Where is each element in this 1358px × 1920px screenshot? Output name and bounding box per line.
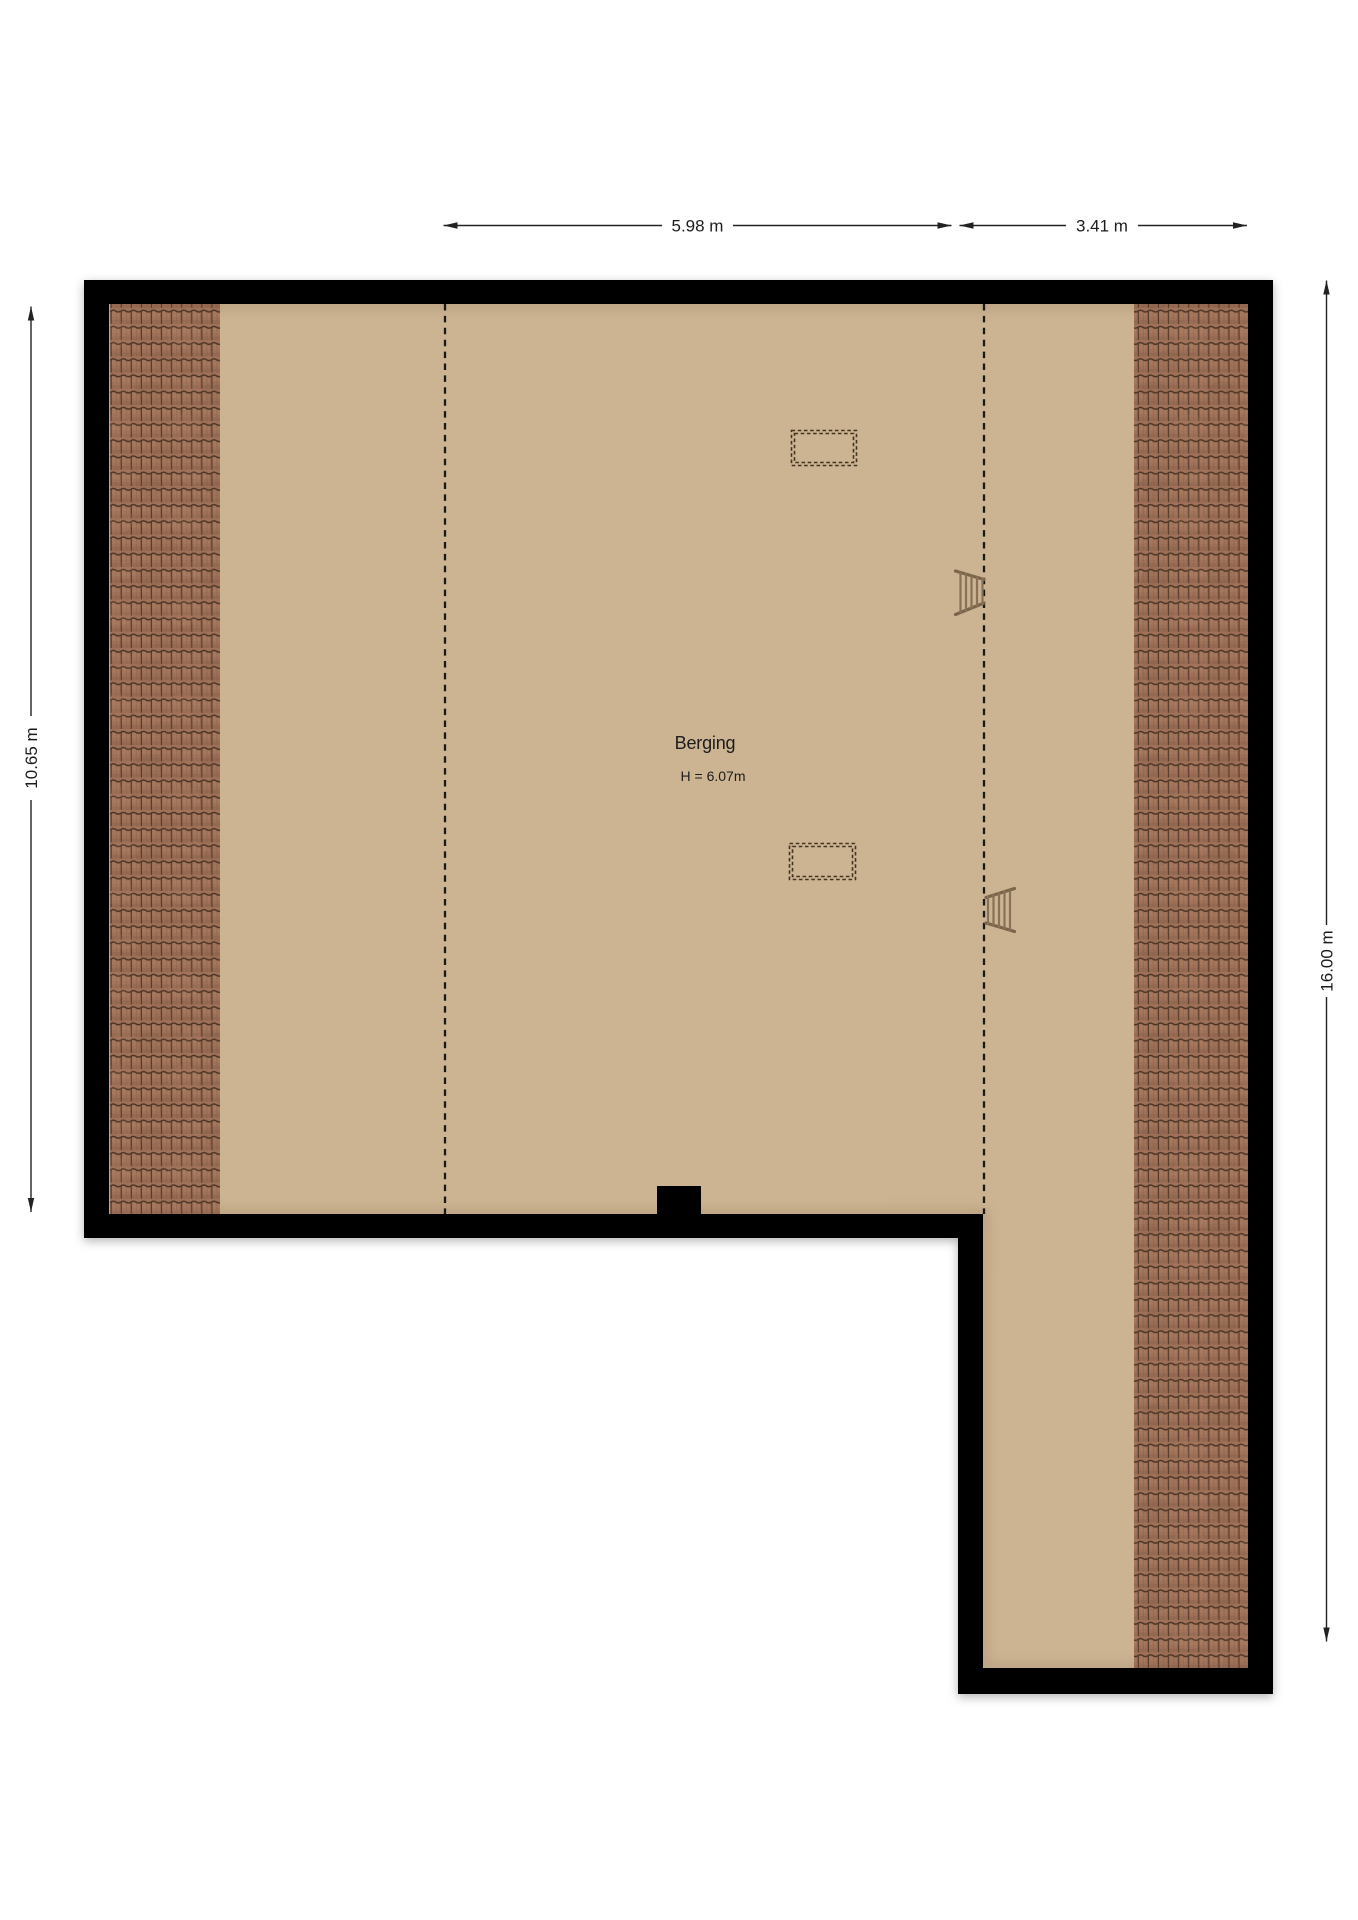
- svg-text:16.00 m: 16.00 m: [1318, 930, 1337, 991]
- svg-text:H = 6.07m: H = 6.07m: [681, 768, 746, 784]
- svg-text:5.98 m: 5.98 m: [672, 217, 724, 236]
- svg-text:3.41 m: 3.41 m: [1076, 217, 1128, 236]
- svg-text:10.65 m: 10.65 m: [22, 727, 41, 788]
- svg-text:Berging: Berging: [675, 733, 736, 753]
